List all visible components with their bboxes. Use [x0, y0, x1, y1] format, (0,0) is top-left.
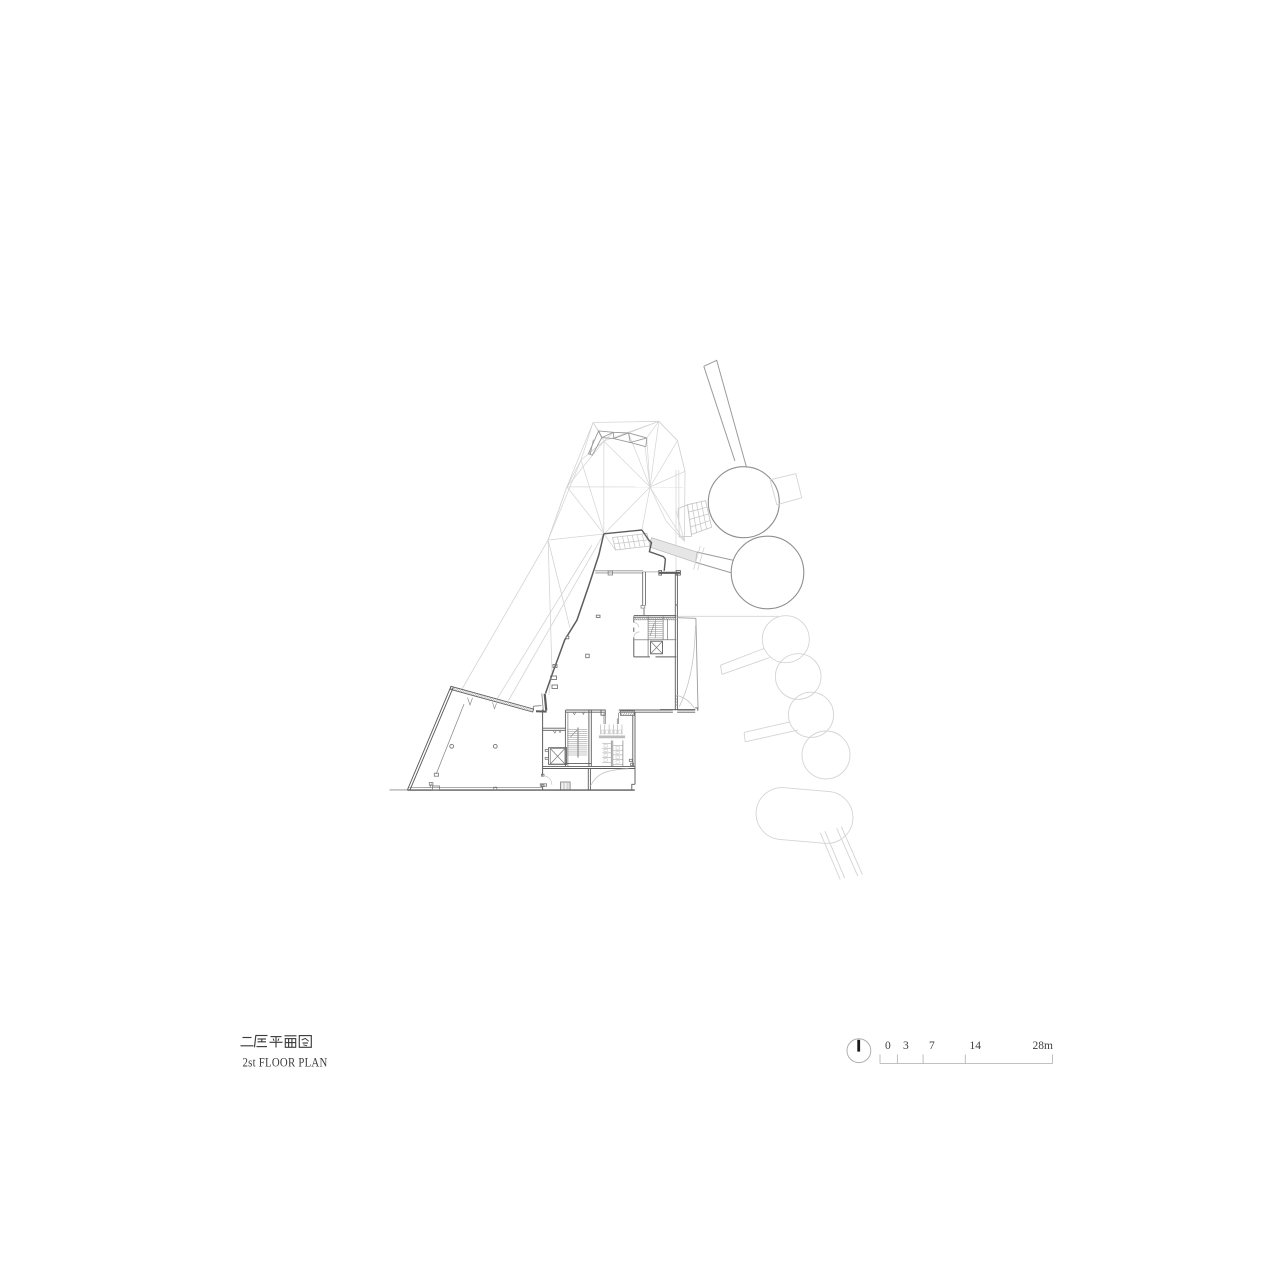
- svg-text:14: 14: [970, 1040, 982, 1052]
- svg-text:0: 0: [885, 1040, 891, 1052]
- svg-text:3: 3: [903, 1040, 909, 1052]
- svg-text:28m: 28m: [1033, 1040, 1054, 1052]
- svg-text:2st FLOOR PLAN: 2st FLOOR PLAN: [243, 1056, 328, 1070]
- svg-text:7: 7: [929, 1040, 935, 1052]
